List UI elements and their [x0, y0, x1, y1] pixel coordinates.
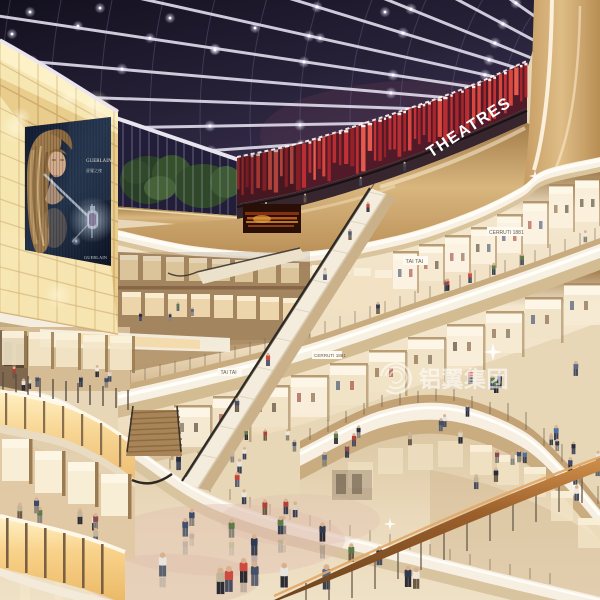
svg-text:TAI TAI: TAI TAI [221, 370, 237, 376]
svg-text:CERRUTI 1881: CERRUTI 1881 [489, 230, 524, 236]
svg-text:铝翼集团: 铝翼集团 [419, 367, 509, 392]
svg-text:CERRUTI 1881: CERRUTI 1881 [314, 353, 346, 358]
svg-text:TAI TAI: TAI TAI [406, 259, 424, 265]
